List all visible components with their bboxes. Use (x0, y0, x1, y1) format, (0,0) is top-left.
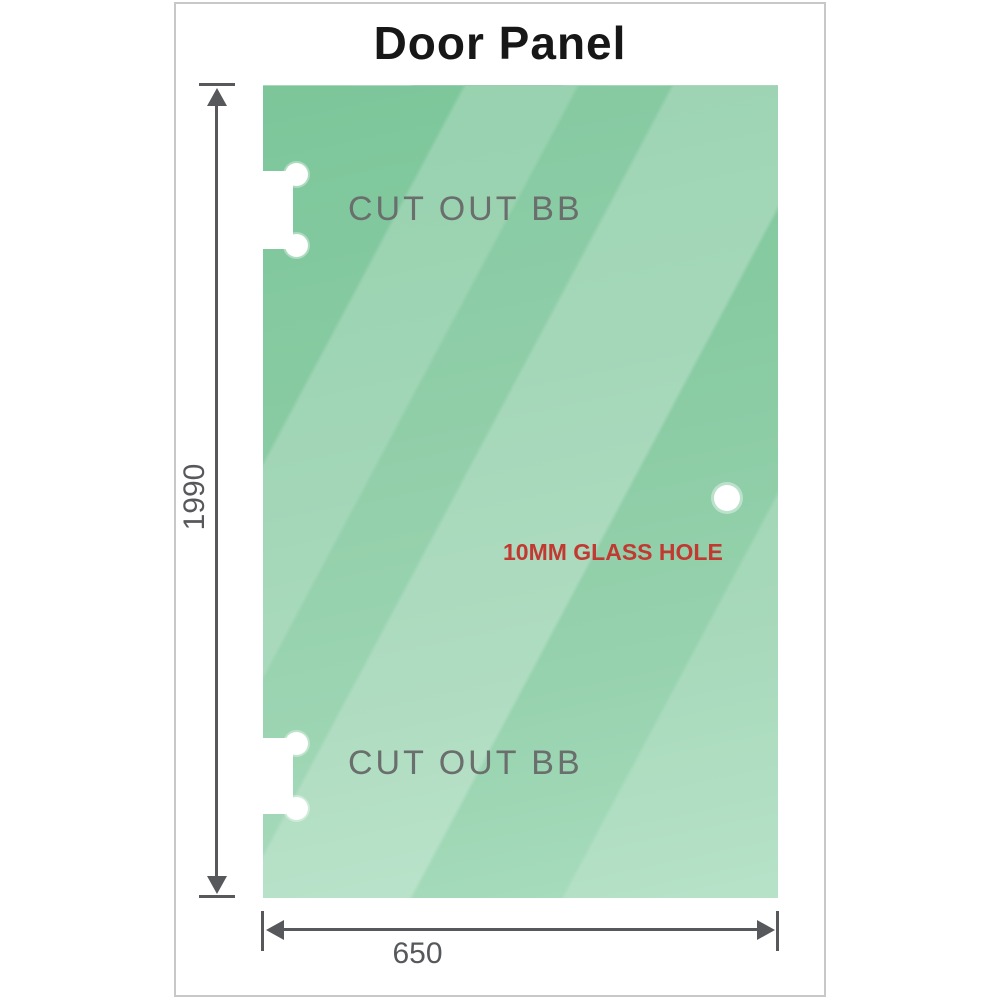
glass-hole (714, 485, 740, 511)
glass-hole-label: 10MM GLASS HOLE (503, 539, 718, 566)
width-dimension-tick-left (261, 911, 264, 951)
height-dimension-cap-bottom (199, 895, 235, 898)
hinge-cutout-bottom-lobe-lower (285, 797, 308, 820)
hinge-cutout-top-lobe-lower (285, 234, 308, 257)
hinge-cutout-bottom-lobe-upper (285, 732, 308, 755)
cutout-label-top: CUT OUT BB (348, 190, 583, 229)
hinge-cutout-top-lobe-upper (285, 163, 308, 186)
width-dimension-line (276, 928, 764, 931)
height-dimension-arrow-down-icon (207, 876, 227, 894)
width-dimension-value: 650 (370, 937, 465, 971)
width-dimension-tick-right (776, 911, 779, 951)
page-title: Door Panel (174, 16, 826, 70)
height-dimension-value: 1990 (178, 437, 212, 557)
height-dimension-cap-top (199, 83, 235, 86)
cutout-label-bottom: CUT OUT BB (348, 744, 583, 783)
width-dimension-arrow-right-icon (757, 920, 775, 940)
height-dimension-line (215, 98, 218, 884)
glass-panel: CUT OUT BB CUT OUT BB 10MM GLASS HOLE (263, 85, 778, 898)
drawing-canvas: Door Panel CUT OUT BB CUT OUT BB 10MM GL… (0, 0, 1000, 1000)
